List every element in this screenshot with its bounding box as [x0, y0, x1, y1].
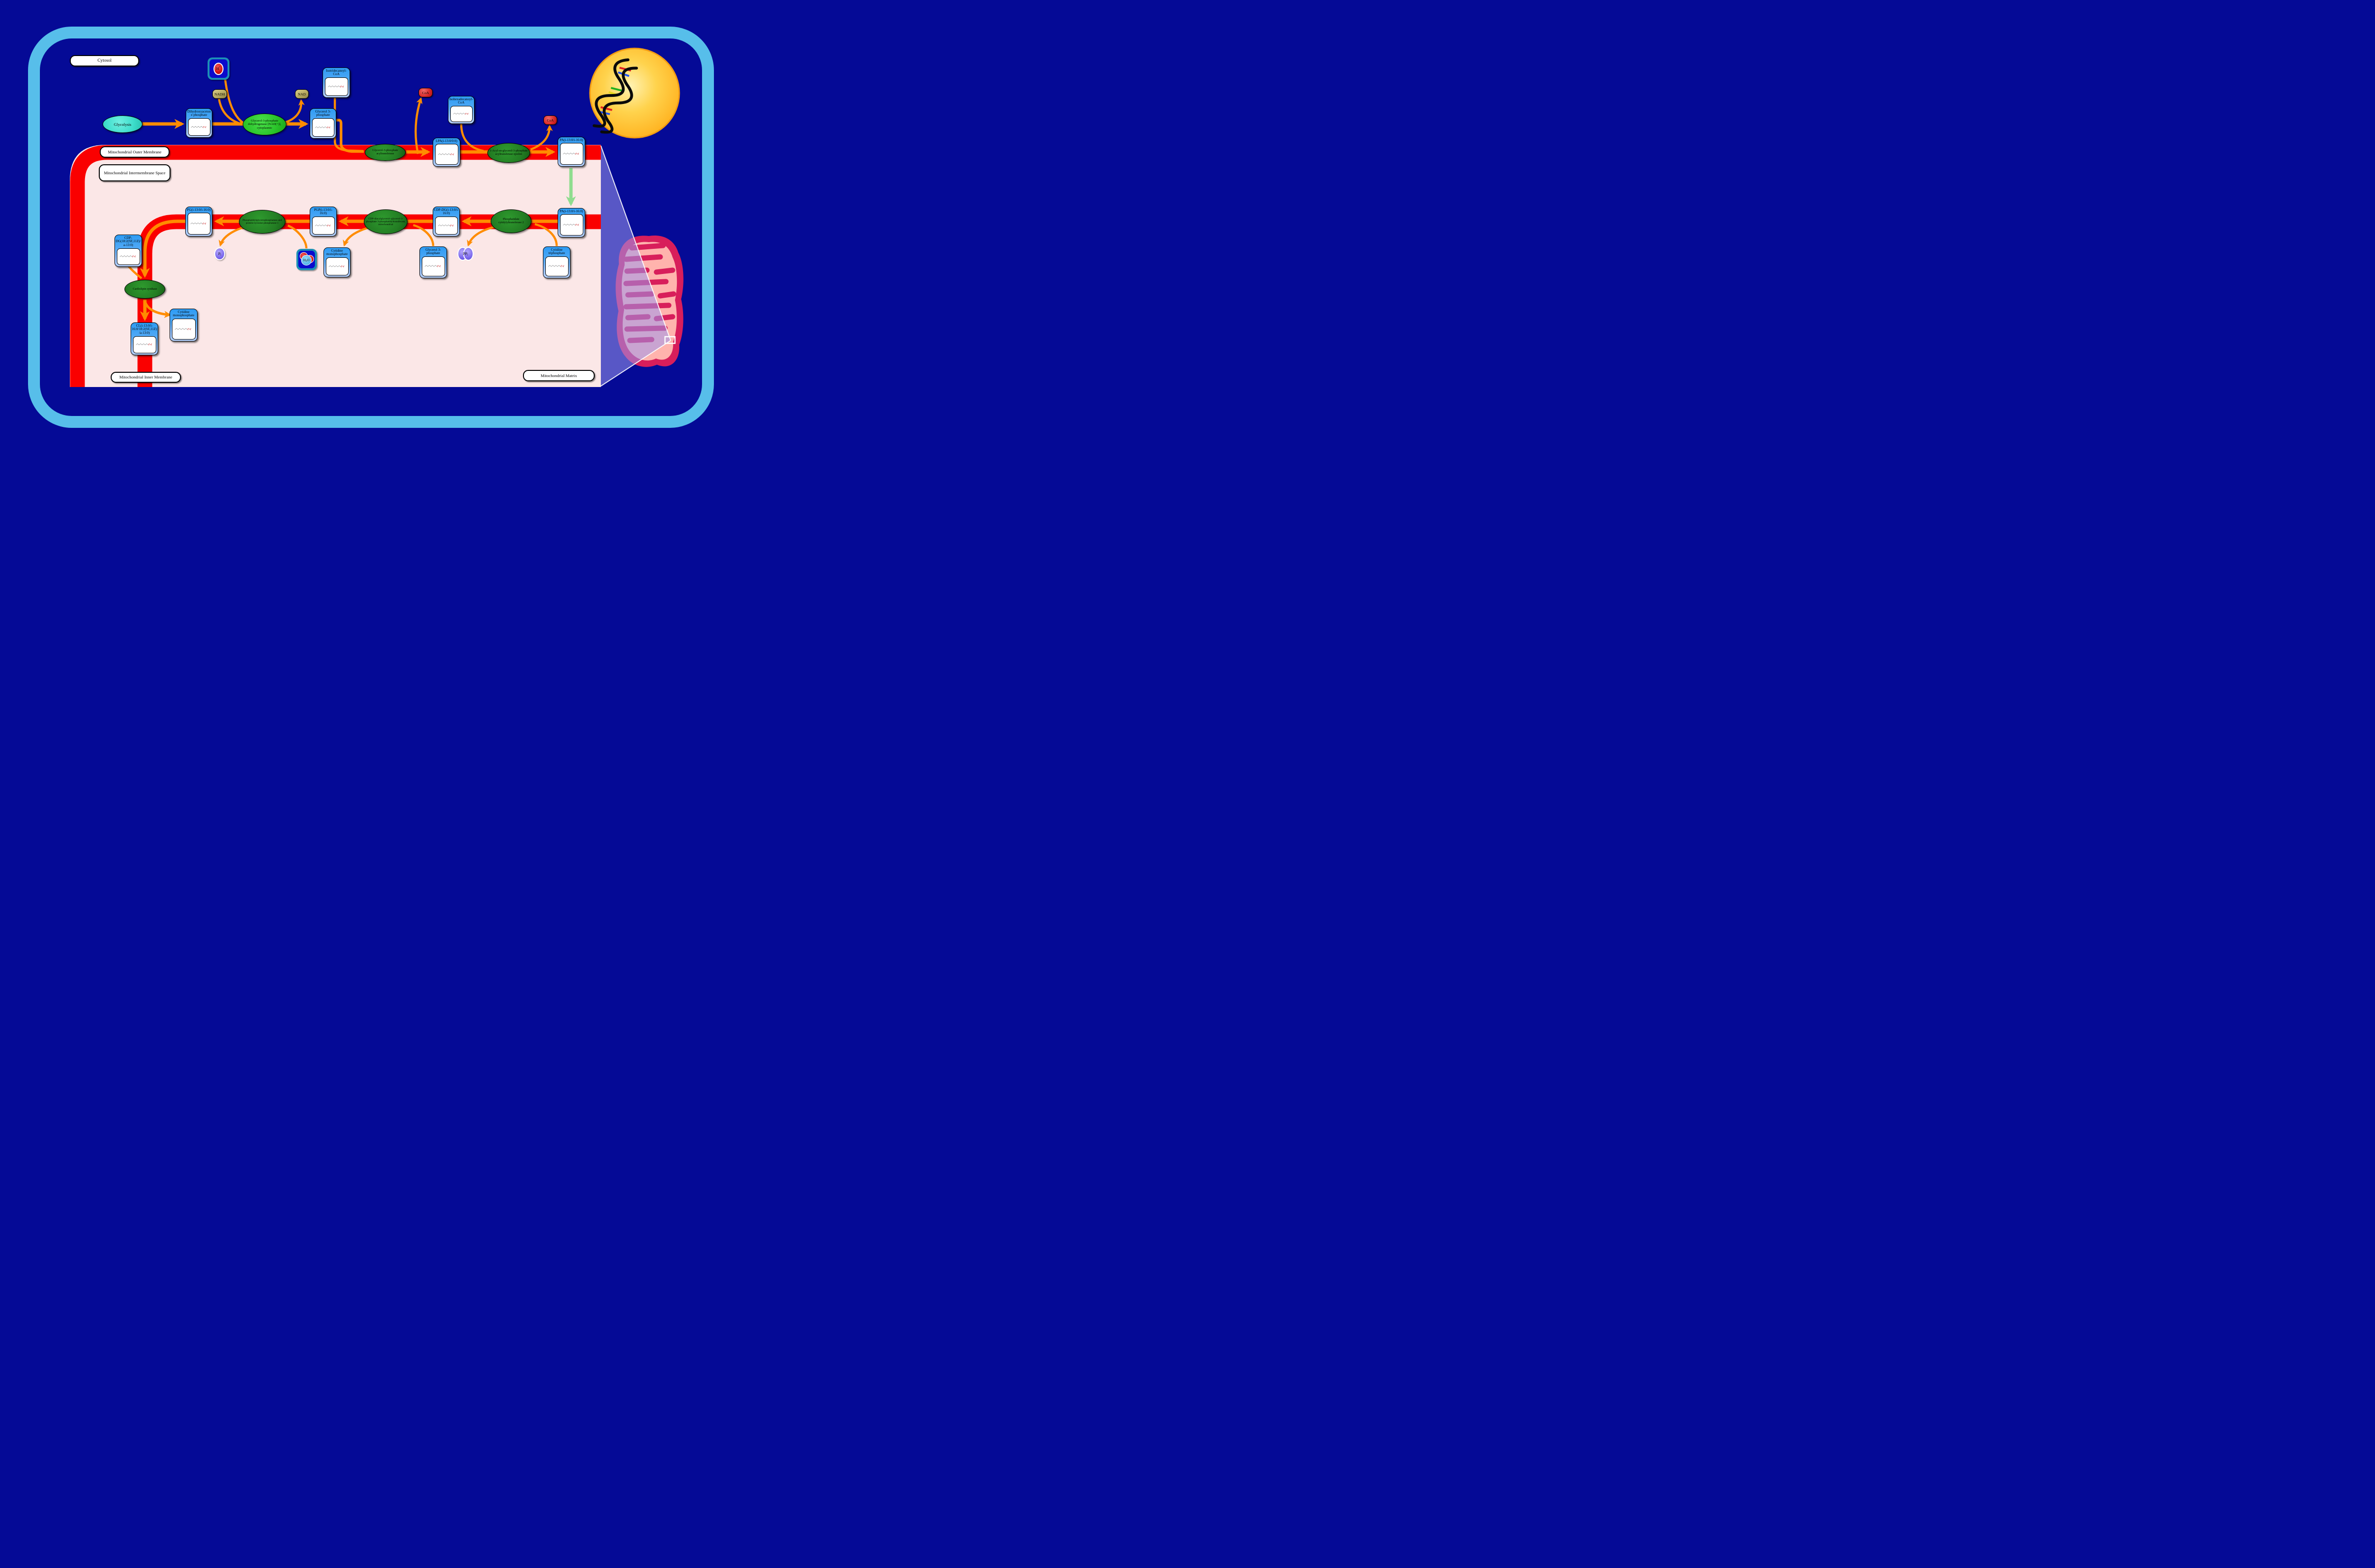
node-cdp-dg-left-label: CDP-DG(18:2(9Z,11Z)/a-13:0) [115, 235, 142, 248]
phosphate-pi[interactable]: Pi [214, 247, 225, 260]
process-glycolysis-label: Glycolysis [114, 122, 132, 127]
node-cmp-lower-label: Cytidine monophosphate [170, 309, 197, 318]
proton-dot: H+ [214, 63, 224, 75]
node-isotridecanoyl-coa[interactable]: Isotridecanoyl-CoA [323, 67, 350, 98]
pathway-canvas: Cytosol Mitochondrial Outer Membrane Mit… [0, 0, 745, 455]
node-cl[interactable]: CL(i-13:0/i-16:0/18:2(9Z,11Z)/a-13:0) [131, 322, 158, 355]
node-dhap[interactable]: Dihydroxyacetone phosphate [186, 108, 212, 138]
node-dhap-label: Dihydroxyacetone phosphate [186, 109, 212, 118]
node-cl-label: CL(i-13:0/i-16:0/18:2(9Z,11Z)/a-13:0) [131, 323, 158, 336]
enzyme-ptpmt1-label: Phosphatidylglycerophosphatase and prote… [241, 219, 284, 225]
cofactor-nad[interactable]: NAD [295, 89, 309, 99]
node-glycerol-3-phosphate-cytosol[interactable]: Glycerol 3-phosphate [310, 108, 336, 139]
structure-drawing [560, 143, 583, 164]
node-g3p-matrix[interactable]: Glycerol 3-phosphate [419, 246, 447, 278]
structure-drawing [450, 106, 473, 122]
enzyme-cls-label: Cardiolipin synthase [133, 288, 157, 291]
node-cdp-dg-inner-label: CDP-DG(i-13:0/i-16:0) [433, 207, 459, 216]
region-label-intermembrane-space: Mitochondrial Intermembrane Space [99, 164, 171, 181]
node-pa-outer[interactable]: PA(i-13:0/i-16:0) [558, 137, 585, 167]
region-label-cytosol: Cytosol [70, 55, 139, 66]
ppi-label: PPi [457, 247, 474, 261]
structure-drawing [435, 217, 458, 234]
cofactor-nadh[interactable]: NADH [212, 89, 227, 99]
node-ctp[interactable]: Cytidine triphosphate [543, 246, 570, 278]
structure-drawing [435, 144, 458, 164]
structure-drawing [422, 256, 445, 276]
structure-drawing [172, 319, 196, 339]
cofactor-nad-label: NAD [298, 92, 305, 96]
pyrophosphate-ppi[interactable]: PPi [457, 247, 474, 261]
cofactor-coa-1[interactable]: CoA [418, 88, 433, 97]
enzyme-gpd-label: Glycerol-3-phosphate dehydrogenase [NAD(… [245, 119, 285, 130]
enzyme-gpat[interactable]: Glycerol-3-phosphate acyltransferase [365, 144, 406, 161]
region-label-inner-membrane: Mitochondrial Inner Membrane [111, 372, 181, 383]
node-pa-inner[interactable]: PA(i-13:0/i-16:0) [558, 208, 585, 237]
structure-drawing [312, 217, 335, 234]
enzyme-agpat-label: 1-Acyl-sn-glycerol-3-phosphate acyltrans… [489, 150, 528, 156]
node-cdp-dg-left[interactable]: CDP-DG(18:2(9Z,11Z)/a-13:0) [114, 235, 142, 267]
water-label: H2O [301, 255, 312, 265]
proton-icon[interactable]: H+ [208, 57, 229, 80]
enzyme-gpd[interactable]: Glycerol-3-phosphate dehydrogenase [NAD(… [243, 113, 286, 135]
node-pg-label: PG(i-13:0/i-16:0) [186, 207, 212, 212]
structure-drawing [545, 256, 569, 276]
node-pgp[interactable]: PGP(i-13:0/i-16:0) [310, 207, 337, 236]
structure-drawing [325, 77, 348, 95]
node-g3p-matrix-label: Glycerol 3-phosphate [420, 247, 446, 256]
structure-drawing [188, 118, 210, 135]
structure-drawing [188, 213, 210, 234]
process-glycolysis[interactable]: Glycolysis [103, 115, 142, 133]
proton-icon-inner: H+ [209, 59, 228, 78]
node-pa-inner-label: PA(i-13:0/i-16:0) [558, 208, 585, 214]
node-isohexadecanoyl-coa[interactable]: Isohexadecanoyl-CoA [448, 96, 475, 124]
enzyme-pgs1[interactable]: CDP-diacylglycerol--glycerol-3-phosphate… [364, 209, 408, 234]
enzyme-cds2[interactable]: Phosphatidate cytidylyltransferase 2 [491, 209, 532, 233]
region-label-outer-membrane: Mitochondrial Outer Membrane [100, 146, 170, 158]
nucleus-illustration [585, 48, 679, 138]
structure-drawing [117, 248, 140, 264]
cofactor-coa-2-label: CoA [547, 118, 553, 123]
node-isotridecanoyl-coa-label: Isotridecanoyl-CoA [323, 68, 350, 77]
structure-drawing [326, 257, 349, 275]
enzyme-cardiolipin-synthase[interactable]: Cardiolipin synthase [124, 280, 165, 299]
node-lpa-label: LPA(i-13:0/0:0) [433, 138, 460, 143]
enzyme-cds2-label: Phosphatidate cytidylyltransferase 2 [493, 218, 530, 225]
node-pa-outer-label: PA(i-13:0/i-16:0) [558, 137, 585, 142]
water-icon-inner: H2O [298, 251, 315, 268]
pi-sub: i [220, 254, 221, 256]
cofactor-coa-1-label: CoA [422, 91, 429, 95]
cofactor-coa-2[interactable]: CoA [543, 115, 557, 125]
node-g3p-cytosol-label: Glycerol 3-phosphate [310, 109, 336, 118]
water-icon[interactable]: H2O [296, 249, 317, 270]
enzyme-agpat-epsilon[interactable]: 1-Acyl-sn-glycerol-3-phosphate acyltrans… [487, 143, 530, 163]
node-cmp-upper-label: Cytidine monophosphate [324, 248, 350, 257]
node-cmp-upper[interactable]: Cytidine monophosphate [323, 247, 351, 277]
enzyme-pgs1-label: CDP-diacylglycerol--glycerol-3-phosphate… [366, 217, 406, 227]
node-ctp-label: Cytidine triphosphate [543, 247, 570, 256]
enzyme-ptpmt1[interactable]: Phosphatidylglycerophosphatase and prote… [239, 210, 285, 234]
node-pgp-label: PGP(i-13:0/i-16:0) [310, 207, 336, 216]
structure-drawing [560, 214, 583, 235]
node-isohexadecanoyl-coa-label: Isohexadecanoyl-CoA [448, 96, 474, 105]
enzyme-gpat-label: Glycerol-3-phosphate acyltransferase [367, 149, 404, 156]
node-lpa[interactable]: LPA(i-13:0/0:0) [433, 138, 460, 167]
node-cdp-dg-inner[interactable]: CDP-DG(i-13:0/i-16:0) [433, 207, 460, 236]
structure-drawing [133, 336, 156, 353]
structure-drawing [312, 118, 334, 136]
cofactor-nadh-label: NADH [215, 92, 225, 96]
node-pg[interactable]: PG(i-13:0/i-16:0) [185, 207, 212, 236]
node-cmp-lower[interactable]: Cytidine monophosphate [170, 309, 198, 341]
region-label-matrix: Mitochondrial Matrix [523, 370, 595, 381]
